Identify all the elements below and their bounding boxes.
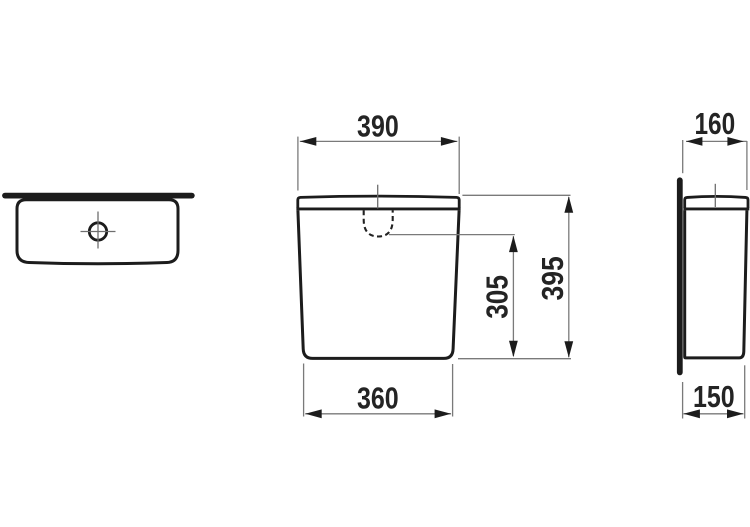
svg-text:160: 160 <box>694 107 735 141</box>
svg-text:150: 150 <box>693 379 735 413</box>
svg-text:360: 360 <box>357 381 399 415</box>
svg-text:305: 305 <box>481 275 515 319</box>
svg-text:390: 390 <box>357 109 399 143</box>
svg-text:395: 395 <box>536 256 570 300</box>
